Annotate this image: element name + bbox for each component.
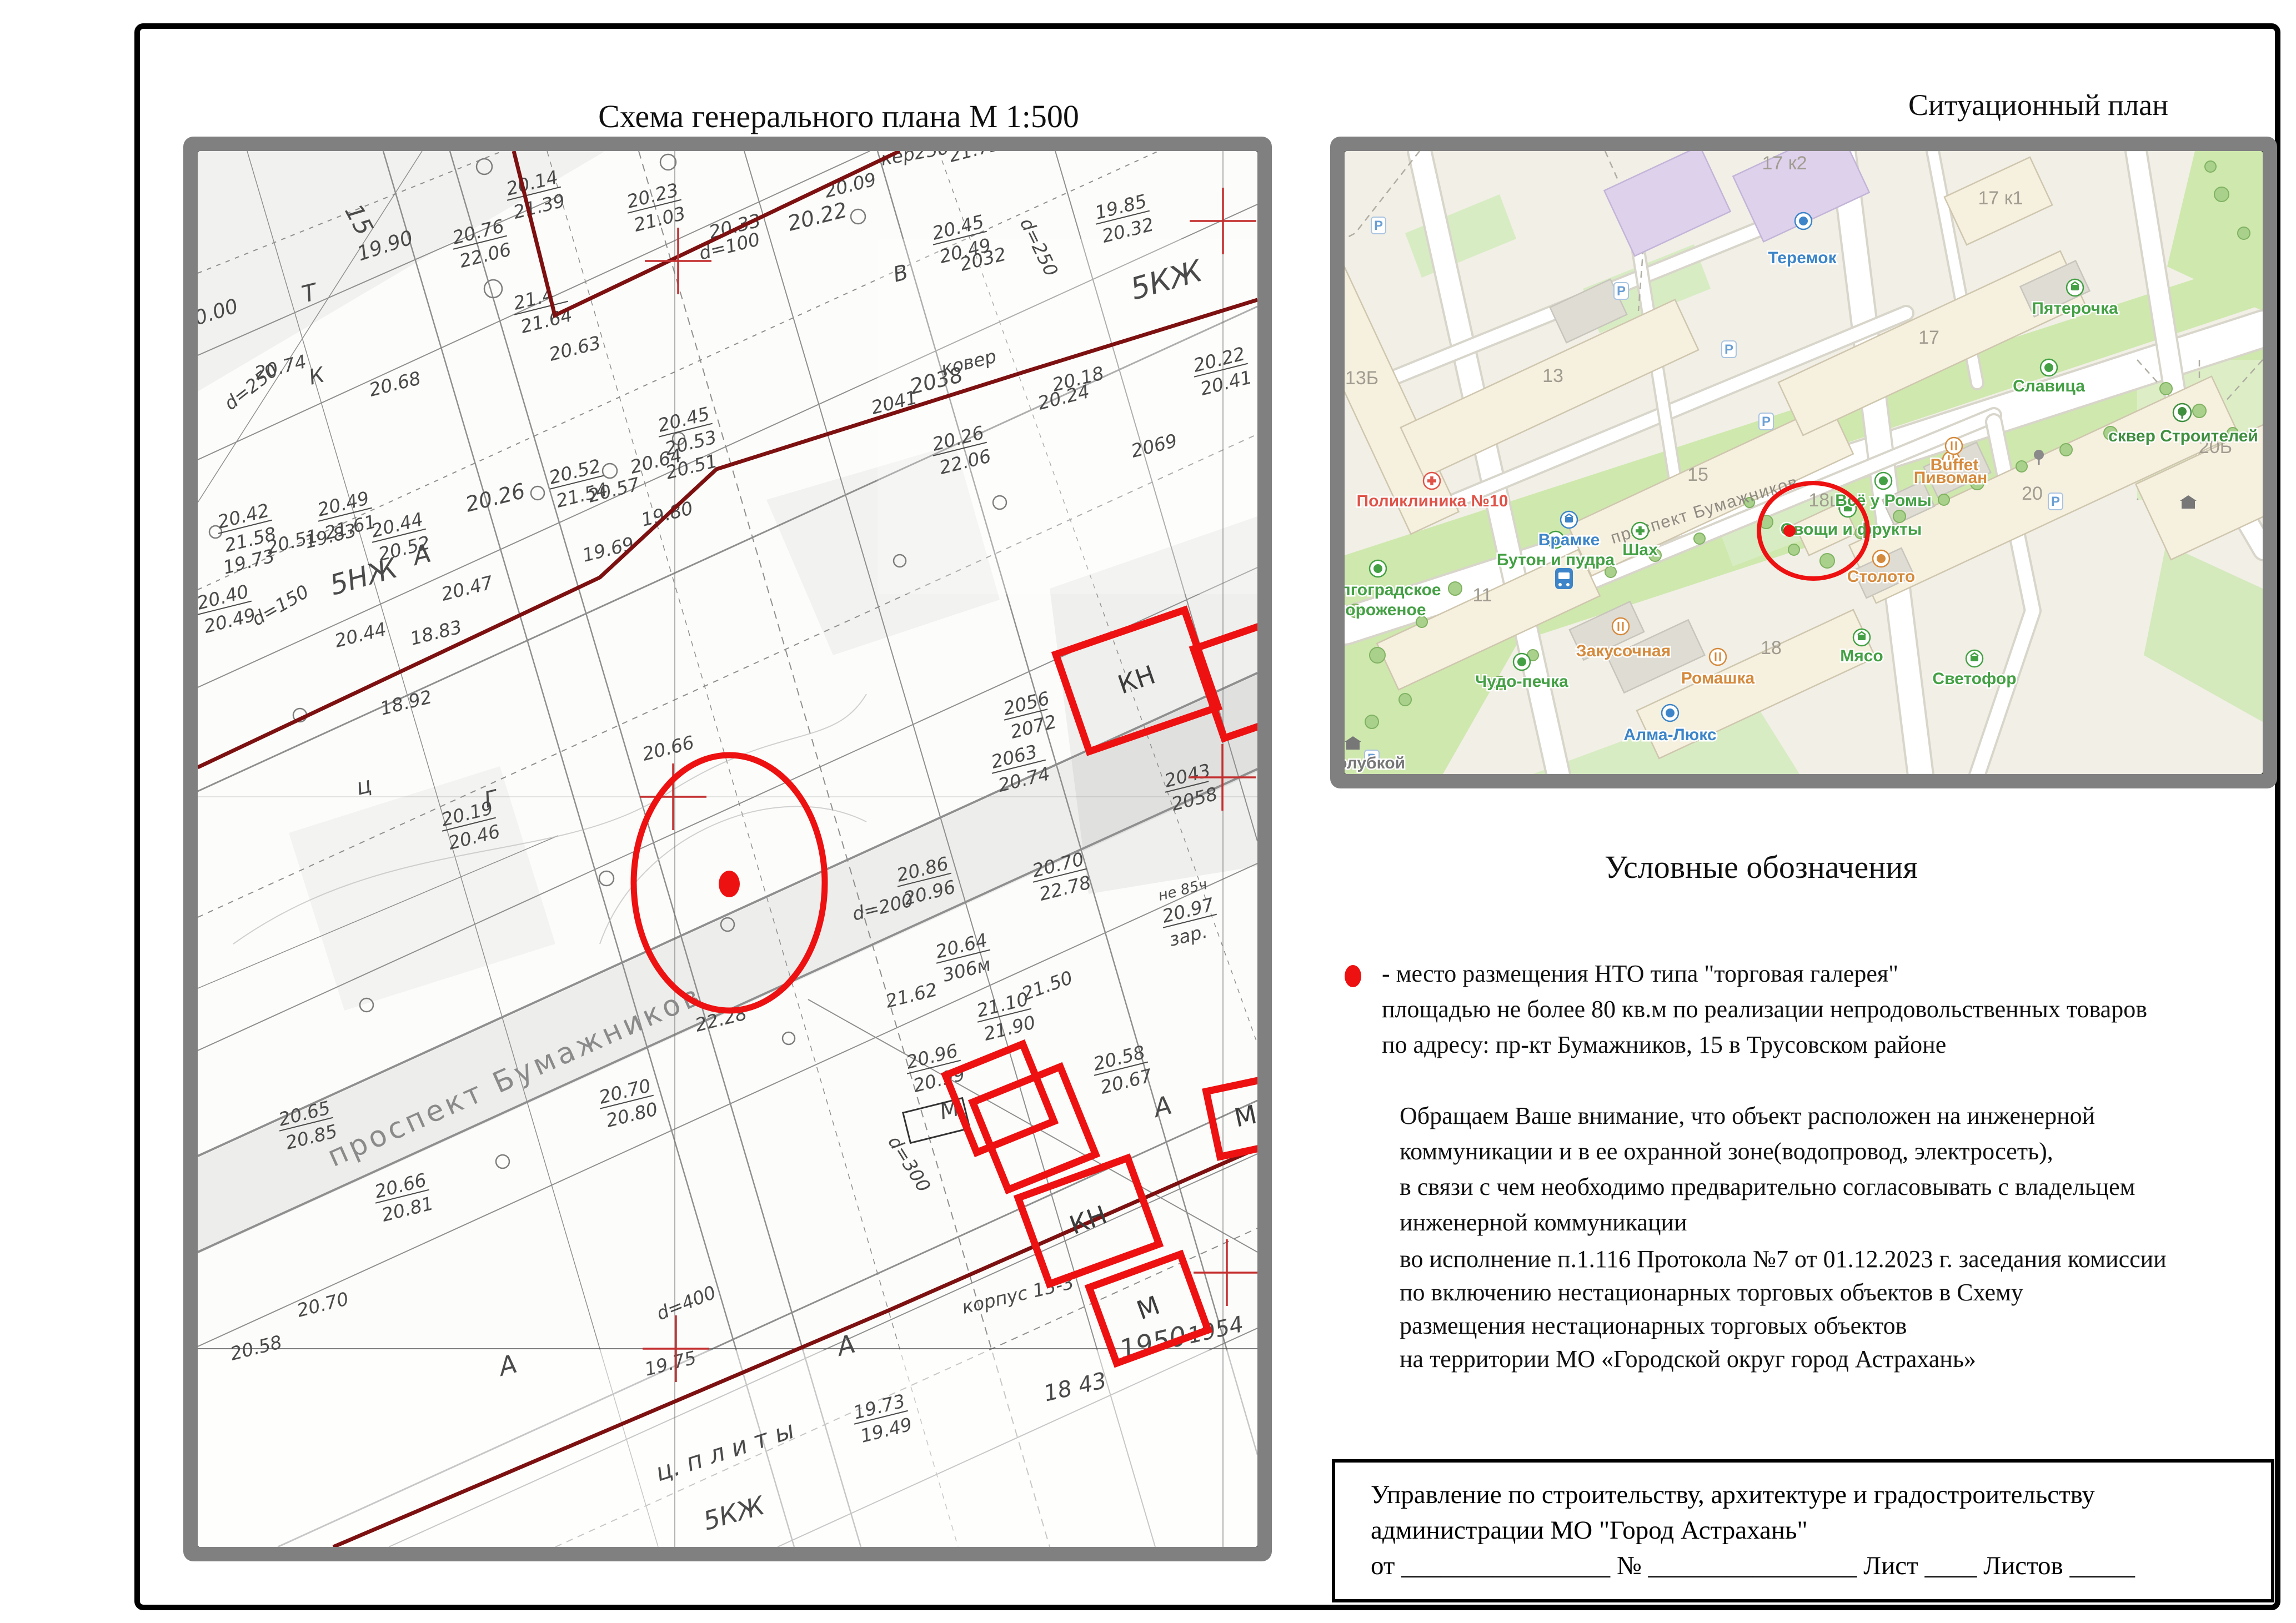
title-block-org-line2: администрации МО "Город Астрахань" [1371,1513,2260,1548]
situation-plan-map-frame [1330,137,2277,788]
legend-line: по включению нестационарных торговых объ… [1400,1276,2167,1309]
general-plan-title: Схема генерального плана М 1:500 [311,98,1366,135]
legend-line: размещения нестационарных торговых объек… [1400,1309,2167,1343]
legend-location-marker-icon [1345,965,1361,987]
legend-text-block-1: - место размещения НТО типа "торговая га… [1382,956,2147,1063]
legend-line: Обращаем Ваше внимание, что объект распо… [1400,1098,2135,1134]
legend-line: на территории МО «Городской округ город … [1400,1343,2167,1376]
legend-line: инженерной коммуникации [1400,1205,2135,1240]
general-plan-map-frame [183,137,1272,1561]
title-block: Управление по строительству, архитектуре… [1332,1459,2274,1602]
legend-line: - место размещения НТО типа "торговая га… [1382,956,2147,992]
title-block-org-line1: Управление по строительству, архитектуре… [1371,1477,2260,1513]
situation-plan-title: Ситуационный план [1799,88,2277,122]
legend-line: во исполнение п.1.116 Протокола №7 от 01… [1400,1243,2167,1276]
legend-title: Условные обозначения [1345,848,2178,886]
legend-line: коммуникации и в ее охранной зоне(водопр… [1400,1134,2135,1169]
legend-line: по адресу: пр-кт Бумажников, 15 в Трусов… [1382,1027,2147,1063]
title-block-fields: от ________________ № ________________ Л… [1371,1548,2260,1584]
legend-text-block-2: Обращаем Ваше внимание, что объект распо… [1400,1098,2135,1240]
legend-text-block-3: во исполнение п.1.116 Протокола №7 от 01… [1400,1243,2167,1376]
legend-line: в связи с чем необходимо предварительно … [1400,1169,2135,1205]
legend-line: площадью не более 80 кв.м по реализации … [1382,992,2147,1027]
